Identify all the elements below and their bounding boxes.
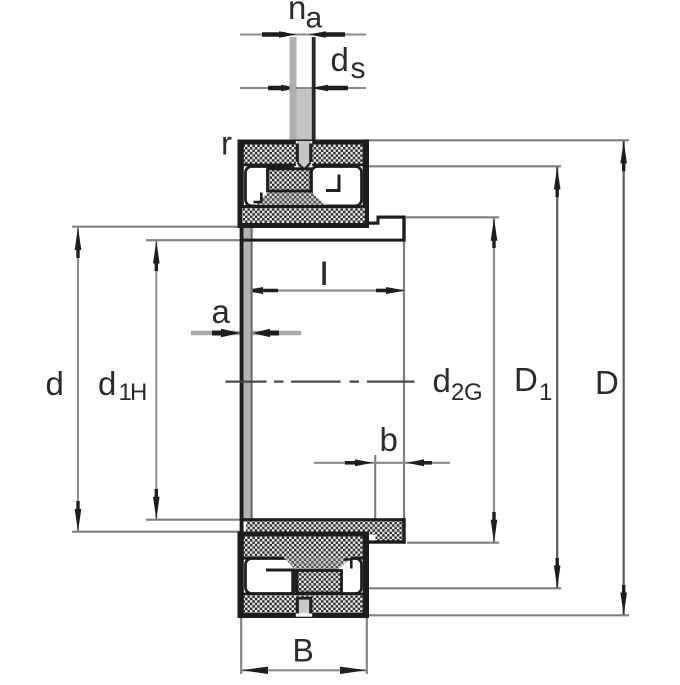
svg-text:a: a <box>306 2 323 35</box>
svg-text:n: n <box>288 0 306 26</box>
svg-text:r: r <box>221 125 232 162</box>
svg-text:D: D <box>514 361 538 398</box>
svg-text:D: D <box>595 364 619 401</box>
svg-text:b: b <box>380 421 398 458</box>
svg-text:d: d <box>433 362 451 399</box>
svg-text:1: 1 <box>539 379 552 406</box>
svg-text:B: B <box>293 633 314 669</box>
svg-text:a: a <box>212 293 231 330</box>
svg-text:2: 2 <box>451 379 464 406</box>
svg-text:G: G <box>464 379 483 406</box>
svg-text:d: d <box>331 41 349 78</box>
svg-text:s: s <box>351 52 366 85</box>
svg-text:d: d <box>46 365 64 402</box>
svg-text:H: H <box>130 379 147 406</box>
svg-text:d: d <box>98 365 116 402</box>
